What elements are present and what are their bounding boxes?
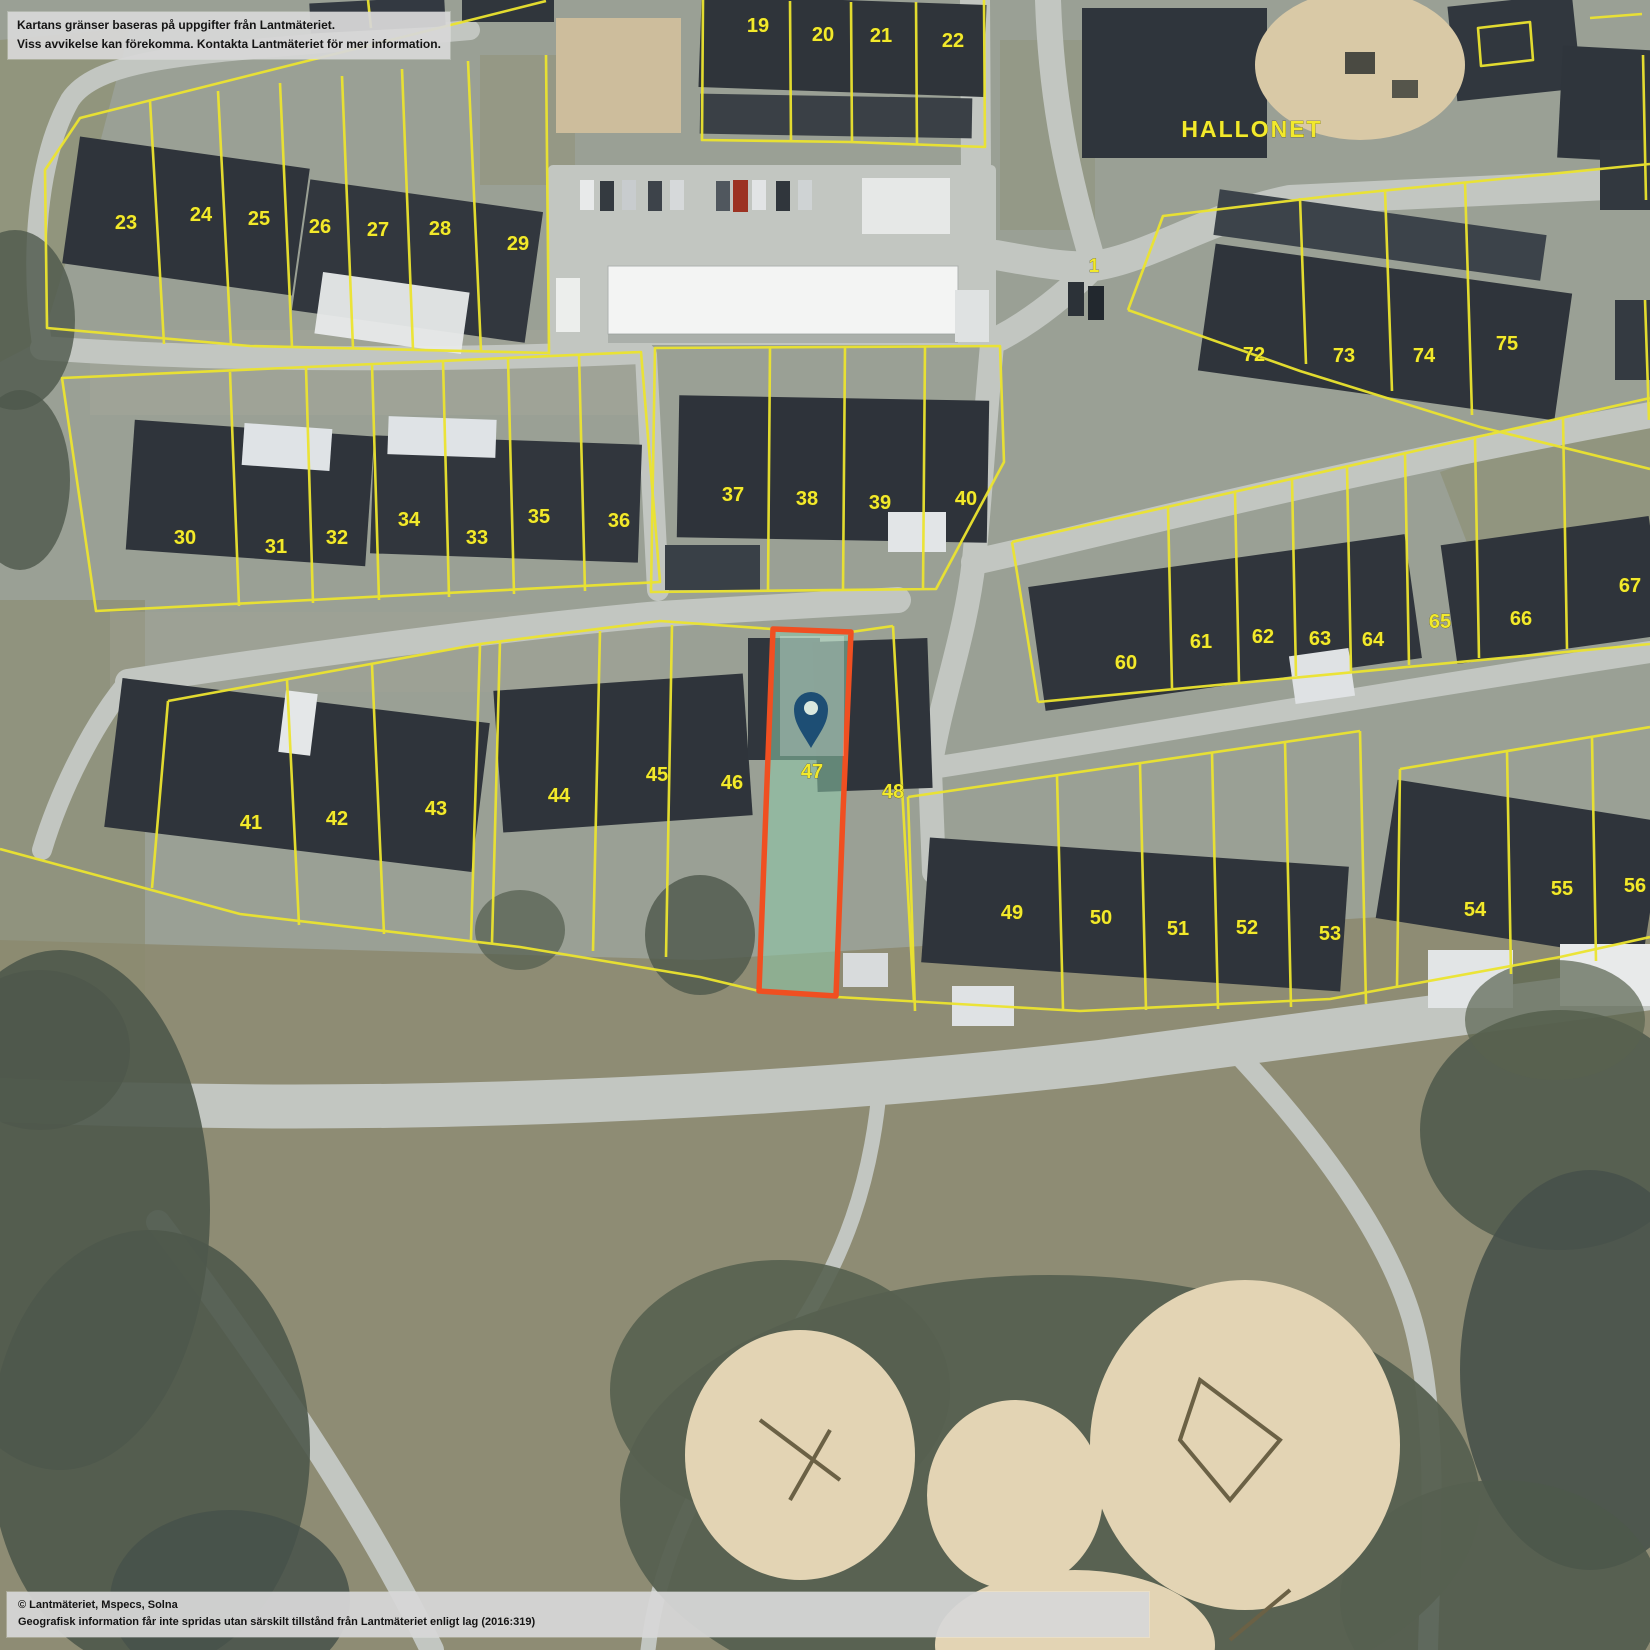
parcel-label-36: 36 bbox=[608, 510, 630, 532]
parcel-label-31: 31 bbox=[265, 536, 287, 558]
parcel-label-66: 66 bbox=[1510, 608, 1532, 630]
parcel-label-63: 63 bbox=[1309, 628, 1331, 650]
parcel-label-43: 43 bbox=[425, 798, 447, 820]
map-disclaimer: Kartans gränser baseras på uppgifter frå… bbox=[8, 12, 450, 59]
parcel-label-38: 38 bbox=[796, 488, 818, 510]
parcel-label-34: 34 bbox=[398, 509, 421, 531]
parcel-label-42: 42 bbox=[326, 808, 348, 830]
highlighted-parcel-47[interactable] bbox=[759, 629, 851, 996]
parcel-label-73: 73 bbox=[1333, 345, 1355, 367]
parcel-label-60: 60 bbox=[1115, 652, 1137, 674]
parcel-label-46: 46 bbox=[721, 772, 743, 794]
parcel-label-24: 24 bbox=[190, 204, 213, 226]
parcel-label-20: 20 bbox=[812, 24, 834, 46]
parcel-label-39: 39 bbox=[869, 492, 891, 514]
parcel-label-75: 75 bbox=[1496, 333, 1518, 355]
parcel-label-54: 54 bbox=[1464, 899, 1487, 921]
parcel-label-67: 67 bbox=[1619, 575, 1641, 597]
parcel-label-51: 51 bbox=[1167, 918, 1189, 940]
pin-hole bbox=[804, 701, 818, 715]
map-attribution: © Lantmäteriet, Mspecs, Solna Geografisk… bbox=[7, 1592, 1149, 1637]
parcel-label-32: 32 bbox=[326, 527, 348, 549]
parcel-label-72: 72 bbox=[1243, 344, 1265, 366]
parcel-label-40: 40 bbox=[955, 488, 977, 510]
road-label-1: 1 bbox=[1089, 256, 1100, 277]
parcel-label-30: 30 bbox=[174, 527, 196, 549]
parcel-label-52: 52 bbox=[1236, 917, 1258, 939]
parcel-label-37: 37 bbox=[722, 484, 744, 506]
parcel-label-49: 49 bbox=[1001, 902, 1023, 924]
parcel-label-25: 25 bbox=[248, 208, 270, 230]
parcel-label-53: 53 bbox=[1319, 923, 1341, 945]
parcel-label-64: 64 bbox=[1362, 629, 1385, 651]
parcel-label-48: 48 bbox=[882, 781, 904, 803]
map-canvas[interactable]: 1920212223242526272829303132343335363738… bbox=[0, 0, 1650, 1650]
disclaimer-line-1: Kartans gränser baseras på uppgifter frå… bbox=[17, 16, 441, 35]
parcel-label-55: 55 bbox=[1551, 878, 1573, 900]
parcel-label-74: 74 bbox=[1413, 345, 1436, 367]
parcel-label-28: 28 bbox=[429, 218, 451, 240]
parcel-label-26: 26 bbox=[309, 216, 331, 238]
parcel-label-62: 62 bbox=[1252, 626, 1274, 648]
parcel-label-19: 19 bbox=[747, 15, 769, 37]
parcel-label-45: 45 bbox=[646, 764, 668, 786]
parcel-label-61: 61 bbox=[1190, 631, 1212, 653]
parcel-label-21: 21 bbox=[870, 25, 892, 47]
parcel-label-44: 44 bbox=[548, 785, 571, 807]
parcel-label-23: 23 bbox=[115, 212, 137, 234]
parcel-label-41: 41 bbox=[240, 812, 262, 834]
parcel-label-27: 27 bbox=[367, 219, 389, 241]
parcel-label-35: 35 bbox=[528, 506, 550, 528]
attribution-line-1: © Lantmäteriet, Mspecs, Solna bbox=[18, 1597, 1138, 1614]
disclaimer-line-2: Viss avvikelse kan förekomma. Kontakta L… bbox=[17, 35, 441, 54]
parcel-label-33: 33 bbox=[466, 527, 488, 549]
parcel-label-29: 29 bbox=[507, 233, 529, 255]
place-label-hallonet: HALLONET bbox=[1181, 116, 1322, 142]
attribution-line-2: Geografisk information får inte spridas … bbox=[18, 1614, 1138, 1631]
parcel-label-22: 22 bbox=[942, 30, 964, 52]
parcel-label-47: 47 bbox=[801, 761, 823, 783]
parcel-label-65: 65 bbox=[1429, 611, 1451, 633]
parcel-label-50: 50 bbox=[1090, 907, 1112, 929]
parcel-label-56: 56 bbox=[1624, 875, 1646, 897]
